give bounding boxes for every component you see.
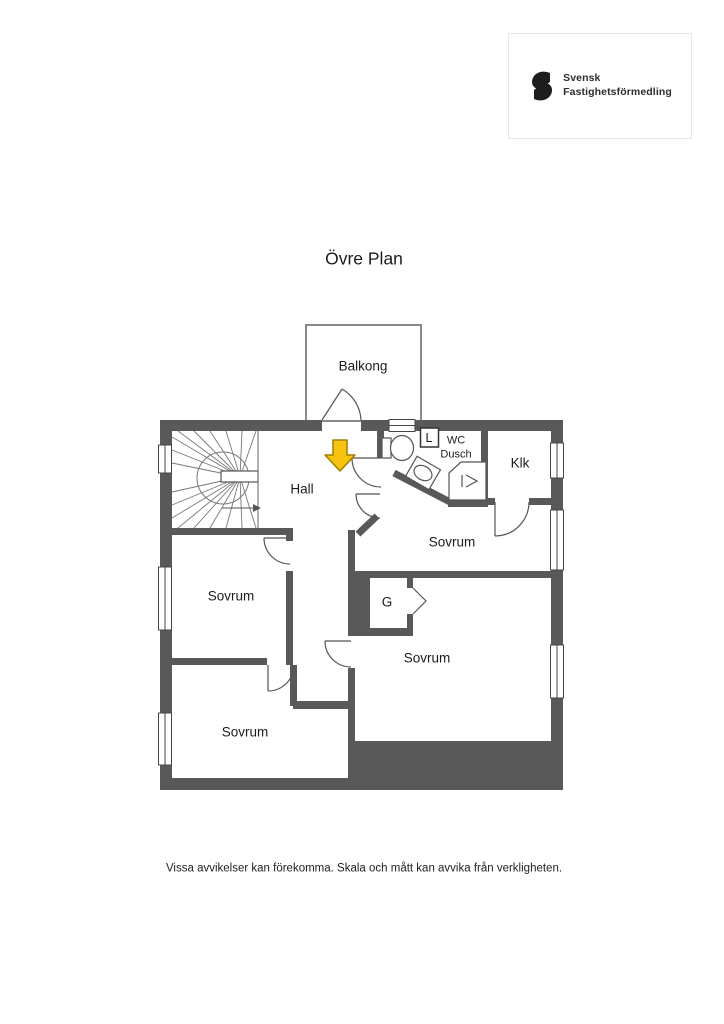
bathroom-fixtures — [382, 428, 486, 500]
doors — [264, 389, 529, 691]
room-label-bedroom-bottom-right: Sovrum — [404, 651, 451, 665]
room-label-balcony: Balkong — [339, 359, 388, 373]
room-label-wc: WC — [447, 436, 465, 447]
disclaimer-text: Vissa avvikelser kan förekomma. Skala oc… — [166, 863, 562, 875]
room-label-hall: Hall — [290, 482, 313, 496]
room-label-bedroom-top: Sovrum — [429, 535, 476, 549]
room-label-laundry: L — [426, 432, 433, 445]
floorplan-title: Övre Plan — [325, 250, 403, 268]
floorplan-page: Svensk Fastighetsförmedling — [0, 0, 724, 1024]
room-label-bedroom-bottom-left: Sovrum — [222, 725, 269, 739]
room-label-wardrobe: G — [382, 595, 393, 609]
room-label-klk: Klk — [511, 456, 530, 470]
room-label-dusch: Dusch — [440, 450, 471, 461]
toilet-icon — [382, 436, 414, 461]
entry-arrow-icon — [325, 440, 355, 471]
staircase — [172, 431, 261, 528]
shower-icon — [449, 462, 486, 500]
room-label-bedroom-left: Sovrum — [208, 589, 255, 603]
